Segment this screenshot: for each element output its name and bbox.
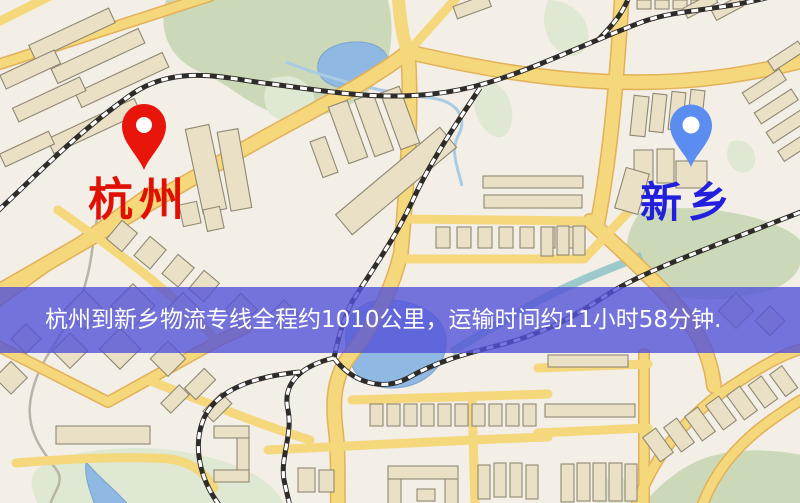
destination-city-label: 新乡	[640, 182, 736, 224]
map-marker-icon	[121, 103, 167, 171]
map-marker-icon	[669, 104, 713, 168]
route-info-banner: 杭州到新乡物流专线全程约1010公里，运输时间约11小时58分钟.	[0, 287, 800, 353]
route-info-text: 杭州到新乡物流专线全程约1010公里，运输时间约11小时58分钟.	[45, 309, 721, 332]
map-screenshot: 杭州 新乡 杭州到新乡物流专线全程约1010公里，运输时间约11小时58分钟.	[0, 0, 800, 503]
origin-pin[interactable]	[121, 103, 167, 175]
map-background	[0, 0, 800, 503]
destination-pin[interactable]	[669, 104, 713, 172]
origin-city-label: 杭州	[88, 177, 190, 222]
